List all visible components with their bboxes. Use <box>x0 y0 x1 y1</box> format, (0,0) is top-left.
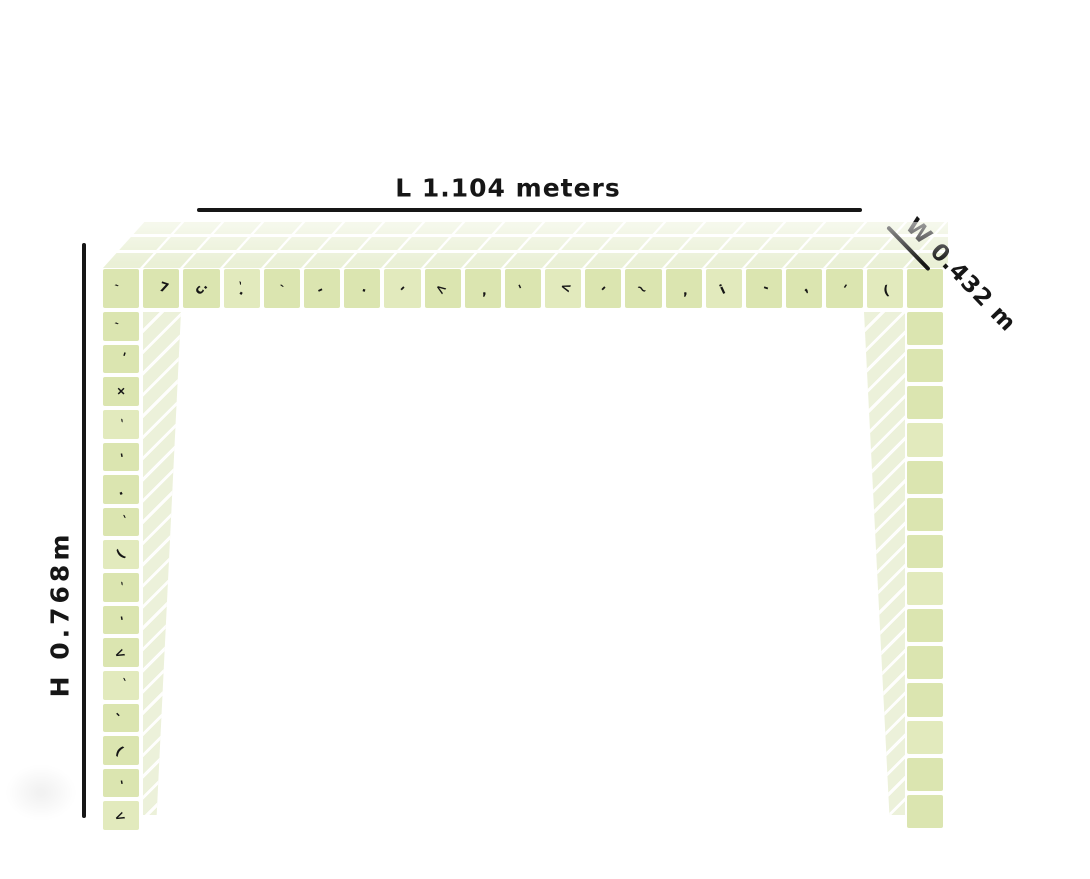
height-dimension-label: H 0.768m <box>46 531 75 698</box>
tile: c. <box>183 269 219 308</box>
tile-scribble: ' <box>837 283 848 296</box>
tile-scribble: ( <box>113 744 125 758</box>
tile <box>907 498 943 531</box>
tile: ( <box>103 736 139 765</box>
left-leg-grid: `'+`'.`(`'<`'('< <box>103 312 139 830</box>
tile <box>907 683 943 716</box>
tile-scribble: ' <box>119 453 125 466</box>
tile: ( <box>867 269 903 308</box>
tile-scribble: , <box>798 282 811 295</box>
tile-scribble: . <box>115 484 125 498</box>
tile: ' <box>103 704 139 733</box>
tile-scribble: ` <box>113 581 126 595</box>
tile: - <box>746 269 782 308</box>
tile-scribble: + <box>113 383 130 400</box>
length-dimension-line <box>197 208 862 212</box>
left-leg-inner-face <box>143 312 181 815</box>
sketch-canvas: `7c.`.`-.-<,'<-~,i-,'( `'+`'.`(`'<`'('< … <box>0 0 1090 879</box>
tile <box>907 795 943 828</box>
tile-scribble: - <box>597 282 610 295</box>
tile-scribble: , <box>682 284 689 298</box>
tile: ' <box>103 769 139 798</box>
tile <box>907 461 943 494</box>
tile-scribble: ` <box>113 418 126 432</box>
tile <box>907 349 943 382</box>
tile-scribble: . <box>360 281 369 295</box>
tile: - <box>304 269 340 308</box>
tile <box>907 646 943 679</box>
tile-scribble: , <box>481 284 488 298</box>
tile-scribble: 7 <box>157 281 170 296</box>
tile-scribble: ` <box>114 283 125 298</box>
tile-scribble: ' <box>517 284 526 297</box>
tile: < <box>103 801 139 830</box>
tile: ' <box>505 269 541 308</box>
tile <box>907 535 943 568</box>
tile: ` <box>103 312 139 341</box>
tile-scribble: < <box>432 281 448 298</box>
tile <box>907 758 943 791</box>
tile-scribble: ( <box>882 284 890 298</box>
tile: ` <box>103 573 139 602</box>
tile-scribble: - <box>762 281 771 295</box>
length-dimension-label: L 1.104 meters <box>395 174 621 203</box>
tile: . <box>344 269 380 308</box>
right-leg-grid <box>907 312 943 828</box>
tile: - <box>384 269 420 308</box>
tile: < <box>545 269 581 308</box>
tile-scribble: < <box>112 646 127 662</box>
tile-scribble: ` <box>118 515 128 529</box>
tile-scribble: - <box>396 282 409 295</box>
tile <box>907 386 943 419</box>
tile-scribble: ' <box>115 712 127 724</box>
tile: ` <box>264 269 300 308</box>
tile-scribble: c. <box>192 279 210 297</box>
right-leg-inner-face <box>864 312 905 815</box>
tile: , <box>786 269 822 308</box>
apron-grid: `7c.`.`-.-<,'<-~,i-,'( <box>103 269 943 308</box>
tile: ' <box>103 606 139 635</box>
tile <box>907 721 943 754</box>
tile: < <box>103 638 139 667</box>
height-dimension-line <box>82 243 86 818</box>
tile <box>907 572 943 605</box>
tile: ' <box>103 345 139 374</box>
tile-scribble: ( <box>114 548 127 561</box>
tile: ` <box>103 269 139 308</box>
tabletop-surface <box>103 222 948 268</box>
tile: < <box>425 269 461 308</box>
tile-scribble: ' <box>119 352 127 366</box>
tile: `. <box>224 269 260 308</box>
tile <box>907 312 943 345</box>
tile-scribble: ` <box>114 321 125 336</box>
tile: ` <box>103 671 139 700</box>
tile: . <box>103 475 139 504</box>
tile: 7 <box>143 269 179 308</box>
tile-scribble: ~ <box>633 281 649 298</box>
tile <box>907 269 943 308</box>
pencil-smudge <box>6 765 76 820</box>
tabletop-grid <box>103 222 948 268</box>
tile: ( <box>103 540 139 569</box>
tile: ~ <box>625 269 661 308</box>
tile: - <box>585 269 621 308</box>
tile <box>907 609 943 642</box>
tile-scribble: < <box>558 280 572 296</box>
tile-scribble: ` <box>118 678 128 692</box>
tile: ` <box>103 410 139 439</box>
tile-scribble: i <box>718 283 728 297</box>
tile-scribble: ' <box>119 616 125 629</box>
tile-scribble: ` <box>279 284 288 298</box>
tile: , <box>666 269 702 308</box>
tile-scribble: ' <box>119 779 125 792</box>
tile: i <box>706 269 742 308</box>
tile: ' <box>826 269 862 308</box>
tile-scribble: `. <box>231 281 248 298</box>
tile <box>907 423 943 456</box>
tile: , <box>465 269 501 308</box>
tile: ' <box>103 443 139 472</box>
tile: ` <box>103 508 139 537</box>
tile: + <box>103 377 139 406</box>
tile-scribble: < <box>112 809 127 825</box>
tile-scribble: - <box>315 283 325 297</box>
